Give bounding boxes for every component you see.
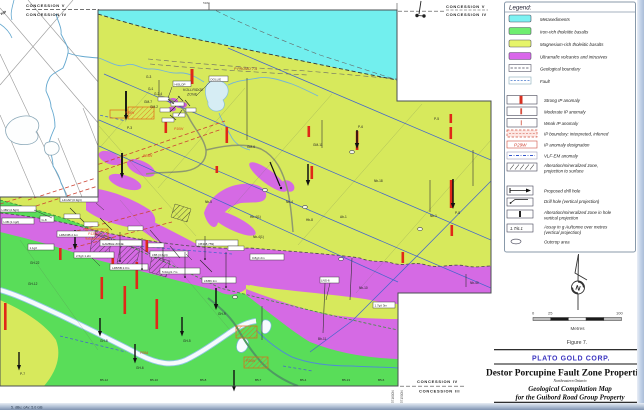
svg-text:CONCESSION V: CONCESSION V <box>446 4 485 9</box>
svg-text:Nb-10: Nb-10 <box>359 286 368 290</box>
svg-text:GM-6: GM-6 <box>247 145 255 149</box>
svg-text:GH-6: GH-6 <box>136 366 144 370</box>
svg-text:GM-2: GM-2 <box>150 105 158 109</box>
svg-text:P-5: P-5 <box>434 117 439 121</box>
svg-text:1.1g/t: 1.1g/t <box>30 246 38 250</box>
svg-text:GM-7: GM-7 <box>144 100 152 104</box>
svg-text:B5-6: B5-6 <box>378 378 385 382</box>
svg-text:GM-11: GM-11 <box>313 143 323 147</box>
svg-text:P PROMO 7-4: P PROMO 7-4 <box>234 67 257 71</box>
svg-text:Ultramafic volcanics and in: Ultramafic volcanics and intrusives <box>540 55 608 60</box>
svg-text:LNS-6: LNS-6 <box>321 279 330 283</box>
svg-text:Ab-1: Ab-1 <box>340 215 347 219</box>
svg-text:Strong IP anomaly: Strong IP anomaly <box>544 98 581 103</box>
svg-text:G-1: G-1 <box>148 87 154 91</box>
svg-text:Geological Compilation Map: Geological Compilation Map <box>528 385 612 393</box>
svg-text:B5-8: B5-8 <box>200 378 207 382</box>
svg-text:Outcrop area: Outcrop area <box>544 240 570 245</box>
svg-text:Nb-1: Nb-1 <box>430 214 437 218</box>
svg-text:5.0Ag/1.7m: 5.0Ag/1.7m <box>162 270 178 274</box>
svg-text:5371500N: 5371500N <box>400 390 404 405</box>
svg-text:Hb-8: Hb-8 <box>306 218 313 222</box>
svg-text:P26W: P26W <box>125 111 135 115</box>
svg-text:for the Guibord Road Group Pro: for the Guibord Road Group Property <box>515 393 625 401</box>
svg-text:Figure 7.: Figure 7. <box>567 340 587 346</box>
svg-text:Nb-40: Nb-40 <box>470 281 479 285</box>
svg-text:B5-13: B5-13 <box>342 378 350 382</box>
svg-text:GH-5: GH-5 <box>183 339 191 343</box>
svg-text:Alteration/mineralized zone,: Alteration/mineralized zone, <box>543 163 598 168</box>
svg-text:GH-9: GH-9 <box>218 312 226 316</box>
svg-text:Fault: Fault <box>540 79 551 84</box>
svg-text:L4B2 (2.5g/t): L4B2 (2.5g/t) <box>2 208 19 212</box>
svg-text:Drill hole (vertical projec: Drill hole (vertical projection) <box>544 199 600 204</box>
svg-text:(vertical projection): (vertical projection) <box>544 230 582 235</box>
svg-text:Metasediments: Metasediments <box>540 17 571 22</box>
svg-text:CONCESSION IV: CONCESSION IV <box>26 12 67 17</box>
svg-text:25: 25 <box>548 311 553 316</box>
svg-text:GH-12: GH-12 <box>28 282 38 286</box>
svg-text:IP boundary: interpreted, i: IP boundary: interpreted, inferred <box>544 132 609 137</box>
svg-text:100: 100 <box>616 311 623 316</box>
svg-text:1.7g/t 3m: 1.7g/t 3m <box>375 304 388 308</box>
svg-text:L3B (1.1g/t): L3B (1.1g/t) <box>4 220 20 224</box>
svg-text:B5-7: B5-7 <box>255 378 262 382</box>
svg-text:Iron-rich tholeiitic basalts: Iron-rich tholeiitic basalts <box>540 30 589 35</box>
svg-text:GH-22: GH-22 <box>30 261 40 265</box>
svg-text:KOLLRIDGE: KOLLRIDGE <box>183 88 204 92</box>
svg-text:Magnesium-rich tholeiitic ba: Magnesium-rich tholeiitic basalts <box>540 42 604 47</box>
svg-text:Nb-4: Nb-4 <box>286 200 293 204</box>
svg-text:Destor Porcupine Fault Zone Pr: Destor Porcupine Fault Zone Properties <box>486 369 644 379</box>
svg-text:G-3: G-3 <box>146 75 152 79</box>
svg-text:CONCESSION III: CONCESSION III <box>419 389 460 394</box>
svg-text:CONCESSION V: CONCESSION V <box>26 3 65 8</box>
svg-text:CONCESSION IV: CONCESSION IV <box>417 379 458 384</box>
svg-text:Weak IP anomaly: Weak IP anomaly <box>544 121 579 126</box>
svg-text:P-6: P-6 <box>358 125 363 129</box>
svg-text:Northeastern Ontario: Northeastern Ontario <box>552 379 586 383</box>
svg-text:GH-8: GH-8 <box>100 339 108 343</box>
svg-text:P-8: P-8 <box>455 211 460 215</box>
svg-text:5. dBu: cAv: 5.0 GB: 5. dBu: cAv: 5.0 GB <box>11 405 43 409</box>
svg-text:P29W: P29W <box>514 143 527 148</box>
svg-text:Nb-5: Nb-5 <box>205 200 212 204</box>
svg-text:L5/B6 2m: L5/B6 2m <box>204 279 217 283</box>
svg-text:projection to surface: projection to surface <box>543 169 584 174</box>
svg-text:PLATO GOLD CORP.: PLATO GOLD CORP. <box>532 356 610 363</box>
svg-text:L4B2/3B 2.1m: L4B2/3B 2.1m <box>59 233 79 237</box>
svg-text:P10W: P10W <box>174 127 184 131</box>
svg-text:Nb-18: Nb-18 <box>374 179 383 183</box>
svg-text:Proposed drill hole: Proposed drill hole <box>544 189 581 194</box>
svg-text:5380: 5380 <box>203 1 210 5</box>
svg-text:CONCESSION IV: CONCESSION IV <box>446 12 487 17</box>
svg-text:P13W: P13W <box>88 232 98 236</box>
svg-text:B5-12: B5-12 <box>100 378 108 382</box>
svg-text:(45308,759): (45308,759) <box>198 242 214 246</box>
svg-text:DOLLIE: DOLLIE <box>211 77 222 81</box>
svg-text:Moderate IP anomaly: Moderate IP anomaly <box>544 110 586 115</box>
svg-text:P08A: P08A <box>140 351 149 355</box>
svg-text:L4CAP (0.9g/t): L4CAP (0.9g/t) <box>62 198 82 202</box>
svg-text:Legend:: Legend: <box>509 5 532 12</box>
svg-text:Assay in g Au/tonne over: Assay in g Au/tonne over metres <box>543 225 608 230</box>
svg-text:Geological boundary: Geological boundary <box>540 67 581 72</box>
svg-text:L4B/5B 2.0m: L4B/5B 2.0m <box>112 266 130 270</box>
svg-text:Nb-4(1): Nb-4(1) <box>253 235 264 239</box>
svg-text:G-2-4: G-2-4 <box>154 92 162 96</box>
svg-text:P-3: P-3 <box>127 126 132 130</box>
svg-text:B5-10: B5-10 <box>150 378 158 382</box>
svg-text:B5-4: B5-4 <box>300 378 307 382</box>
svg-text:P29W: P29W <box>143 154 153 158</box>
svg-text:HISLOP: HISLOP <box>175 82 186 86</box>
svg-text:Hb-4(1): Hb-4(1) <box>250 215 261 219</box>
svg-text:VLF-EM anomaly: VLF-EM anomaly <box>544 154 579 159</box>
svg-text:0.8g/t 2m: 0.8g/t 2m <box>252 256 265 260</box>
svg-text:L5B (3.6g/t): L5B (3.6g/t) <box>152 253 168 257</box>
svg-text:1.7/6.1: 1.7/6.1 <box>510 226 523 231</box>
svg-text:G-8: G-8 <box>42 218 47 222</box>
svg-text:IP anomaly designation: IP anomaly designation <box>544 143 590 148</box>
svg-text:vertical projection: vertical projection <box>544 216 579 221</box>
svg-text:2.5g/t 1.2m: 2.5g/t 1.2m <box>76 254 92 258</box>
svg-text:GAMBLE ZONE: GAMBLE ZONE <box>102 242 124 246</box>
svg-text:P20W: P20W <box>246 359 256 363</box>
svg-text:Metres: Metres <box>570 326 585 331</box>
svg-text:P-7: P-7 <box>20 372 25 376</box>
svg-text:Bb-11: Bb-11 <box>318 337 326 341</box>
svg-text:Alteration/mineralized zone: Alteration/mineralized zone in hole <box>543 210 612 215</box>
svg-text:5371600N: 5371600N <box>391 390 395 405</box>
svg-text:ZONE: ZONE <box>186 93 198 97</box>
